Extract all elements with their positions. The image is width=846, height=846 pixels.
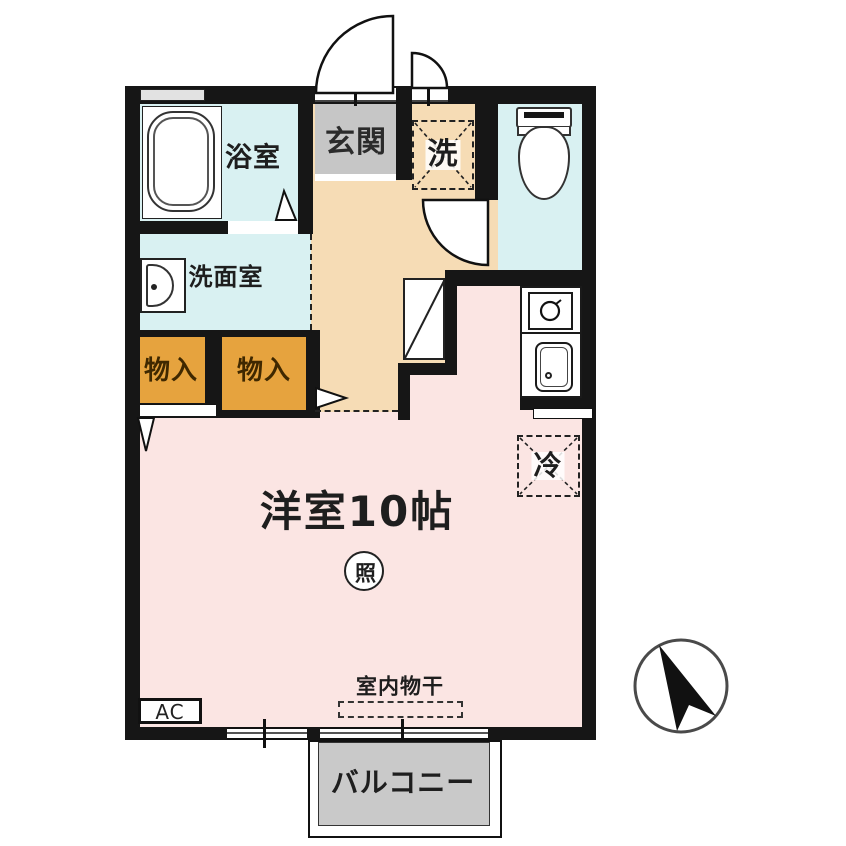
toilet-tank-slot [524, 112, 564, 118]
kitchen-sink-drain [545, 372, 552, 379]
door-tick-small [427, 79, 430, 106]
wall-hall-step-v1 [445, 270, 457, 375]
main-room-label: 洋室10帖 [260, 491, 454, 533]
balcony-sliding-door-line [320, 732, 488, 734]
closet-2-label: 物入 [237, 358, 291, 384]
bathroom-label: 浴室 [225, 145, 281, 172]
vanity-drain [151, 284, 157, 290]
kitchen-divider [520, 332, 582, 334]
wall-left [125, 86, 140, 740]
ac-label: AC [155, 702, 184, 722]
room-door-leaf-box [403, 278, 445, 360]
bathtub-inner [153, 117, 209, 206]
window-tick-left [263, 719, 266, 748]
bath-door-opening [228, 221, 298, 234]
entrance-step [315, 174, 396, 181]
compass-circle [635, 640, 727, 732]
washroom-open-edge [310, 234, 312, 330]
closet-1-track [136, 404, 216, 416]
door-tick-entrance [354, 79, 357, 106]
wall-hall-step-v2 [398, 363, 410, 420]
window-kitchen [533, 408, 593, 419]
washroom-label: 洗面室 [189, 265, 264, 289]
small-door-opening [412, 88, 448, 102]
wall-washer-toilet [475, 86, 498, 200]
entrance-label: 玄関 [325, 128, 387, 158]
light-label: 照 [355, 564, 377, 585]
floor-plan: 浴室 洗面室 玄関 洗 物入 物入 洋室10帖 照 冷 AC 室内物干 バルコニ… [0, 0, 846, 846]
north-arrow-icon [659, 645, 716, 731]
wall-entrance-right [396, 86, 412, 180]
window-bathroom-top [140, 89, 205, 101]
washer-label: 洗 [426, 140, 461, 170]
balcony-label: バルコニー [331, 769, 475, 797]
kitchen-sink-inner [540, 347, 568, 387]
hall-room-open-edge [315, 410, 398, 412]
indoor-drying-label: 室内物干 [356, 677, 444, 698]
fridge-label: 冷 [531, 452, 564, 480]
indoor-drying-box [338, 701, 463, 718]
wall-toilet-bottom [445, 270, 596, 286]
kitchen-stove [528, 292, 573, 330]
hallway-floor-lower [311, 363, 398, 412]
closet-1-label: 物入 [144, 358, 198, 384]
window-main-left-line [227, 732, 307, 734]
wall-bath-right [298, 86, 313, 234]
light-symbol: 照 [344, 551, 384, 591]
